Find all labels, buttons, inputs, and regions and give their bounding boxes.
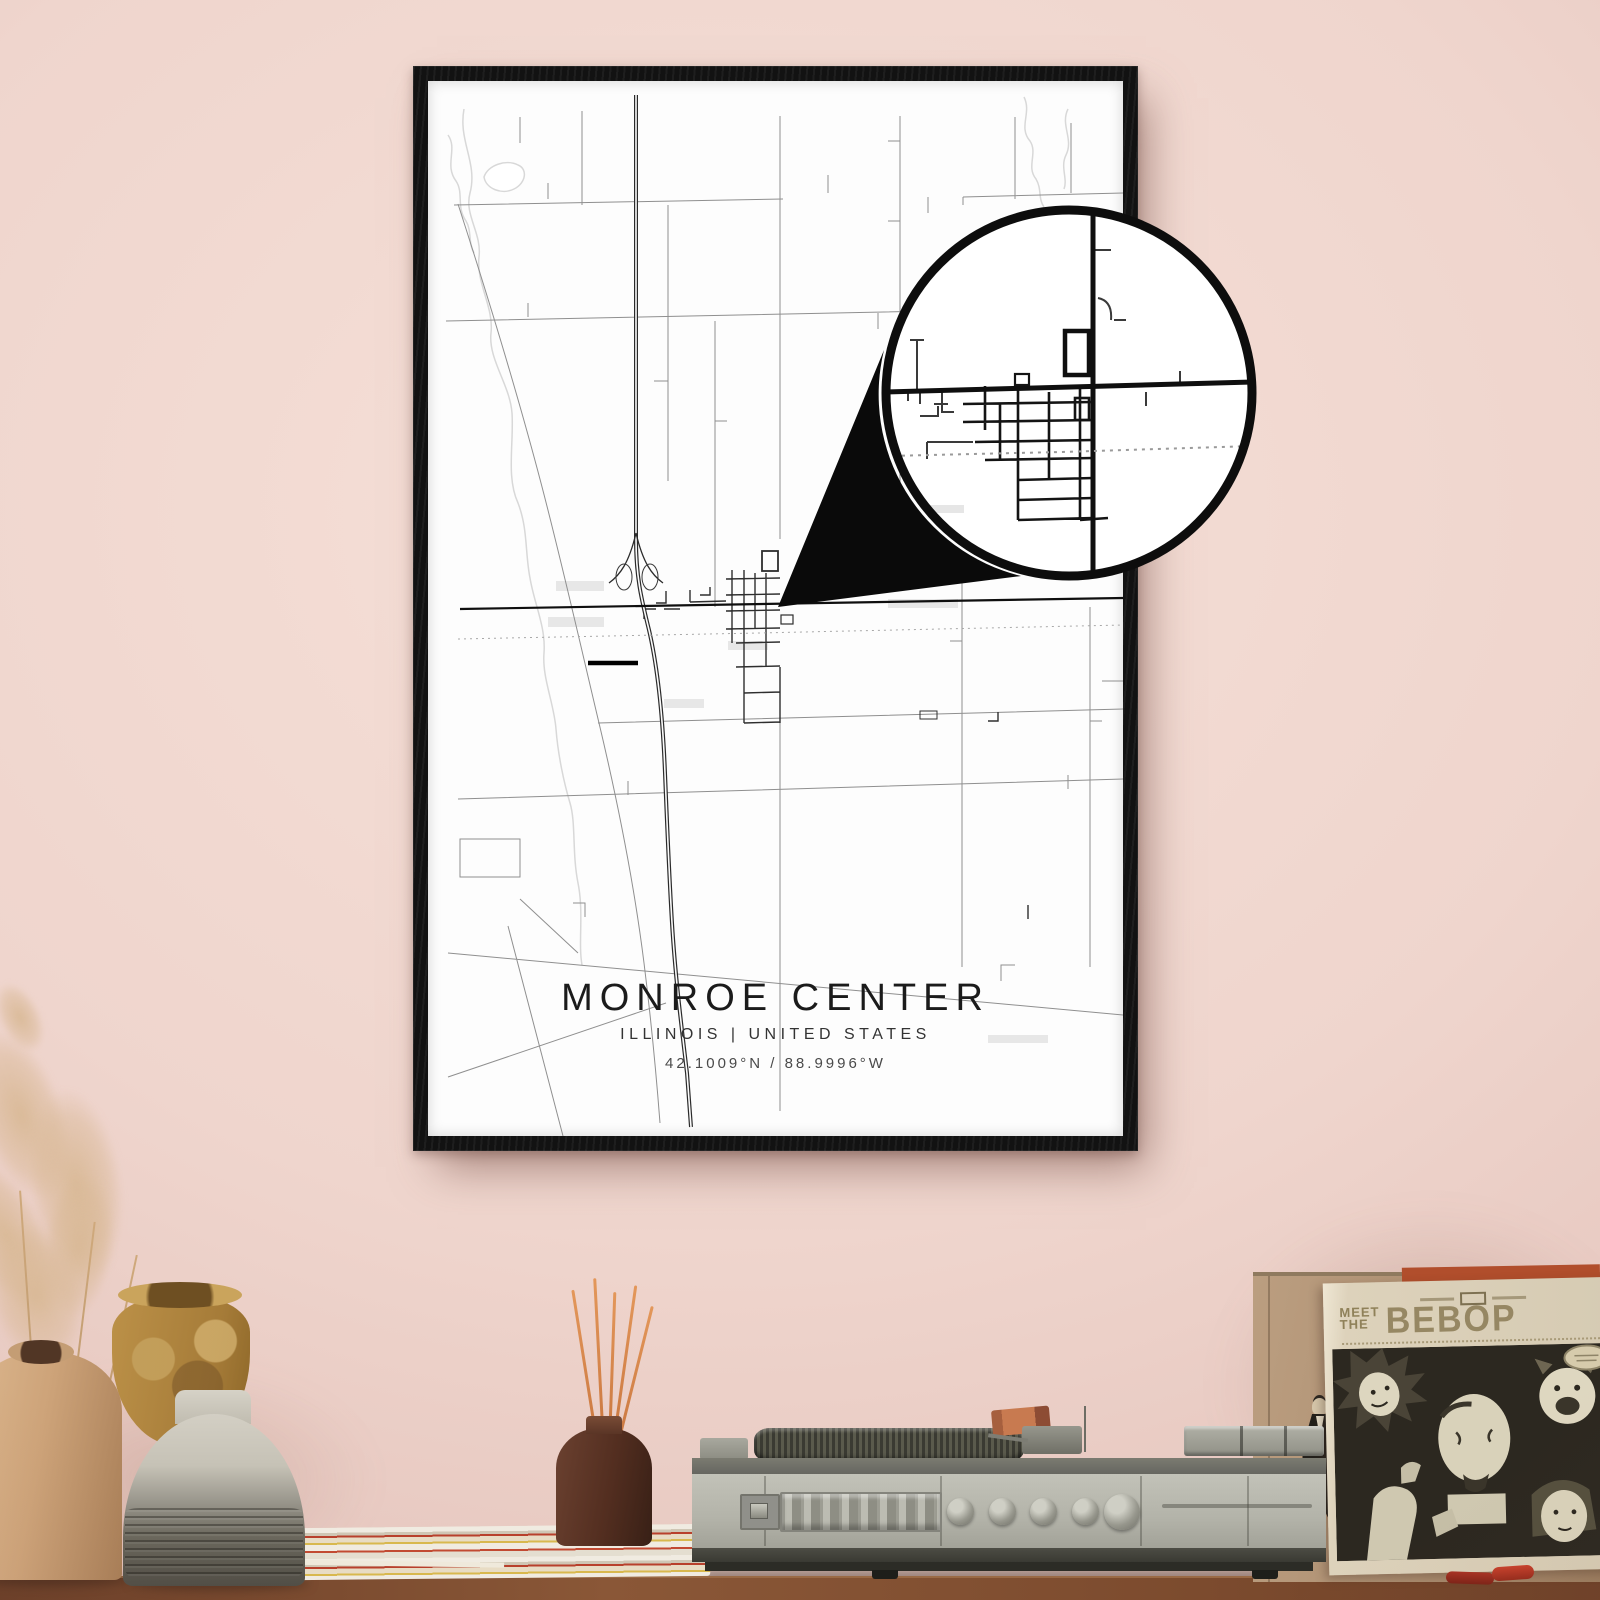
record-sleeve: MEET THE BEBOP <box>1323 1277 1600 1576</box>
turntable-platter <box>754 1428 1024 1462</box>
preset-keys <box>1184 1426 1324 1456</box>
record-player-base-lower <box>705 1562 1314 1571</box>
record-player-corner-post <box>700 1438 748 1460</box>
red-lighter <box>1446 1571 1494 1585</box>
knob <box>947 1498 974 1525</box>
tonearm <box>1022 1426 1082 1454</box>
poster-coordinates: 42.1009°N / 88.9996°W <box>428 1055 1123 1072</box>
reed-diffuser-bottle <box>556 1428 652 1546</box>
sleeve-header: MEET THE BEBOP <box>1333 1283 1600 1351</box>
tan-jug-vase <box>0 1352 122 1580</box>
key-divider <box>1284 1426 1287 1456</box>
power-button <box>740 1494 780 1530</box>
record-player-front-panel <box>692 1474 1326 1548</box>
sleeve-word-the: THE <box>1339 1316 1368 1332</box>
map-buildings <box>548 581 1048 1043</box>
magnifier-callout <box>680 190 1270 620</box>
pushbutton-row <box>780 1492 942 1532</box>
jet-collar <box>1448 1493 1507 1524</box>
sleeve-title-row: MEET THE BEBOP <box>1339 1301 1600 1338</box>
poster-caption: MONROE CENTER ILLINOIS | UNITED STATES 4… <box>428 979 1123 1072</box>
sleeve-artwork <box>1332 1343 1600 1561</box>
record-player <box>692 1400 1326 1578</box>
tan-jug-mouth <box>8 1340 74 1364</box>
tuning-knob <box>1104 1494 1140 1530</box>
sleeve-title: BEBOP <box>1385 1302 1517 1337</box>
gray-bottle-vase <box>123 1390 305 1586</box>
poster-subtitle: ILLINOIS | UNITED STATES <box>428 1026 1123 1044</box>
poster-title: MONROE CENTER <box>428 979 1123 1017</box>
knob <box>1072 1498 1099 1525</box>
sleeve-pre-title: MEET THE <box>1339 1306 1380 1331</box>
gray-vase-ribs <box>125 1508 303 1578</box>
key-divider <box>1240 1426 1243 1456</box>
knob <box>1030 1498 1057 1525</box>
diffuser-neck <box>586 1416 622 1434</box>
record-player-top-band <box>692 1458 1326 1474</box>
magazine-page <box>284 1560 504 1568</box>
panel-seam <box>1140 1476 1142 1546</box>
record-player-foot <box>872 1570 898 1579</box>
record-player-foot <box>1252 1570 1278 1579</box>
antenna <box>1084 1406 1086 1452</box>
map-highway <box>609 95 691 1127</box>
knob <box>989 1498 1016 1525</box>
ochre-vase-rim <box>118 1282 242 1308</box>
room-scene: MONROE CENTER ILLINOIS | UNITED STATES 4… <box>0 0 1600 1600</box>
panel-seam <box>1247 1476 1249 1546</box>
red-lighter <box>1492 1565 1535 1582</box>
record-player-base <box>692 1548 1326 1562</box>
dial-slot <box>1162 1504 1312 1508</box>
